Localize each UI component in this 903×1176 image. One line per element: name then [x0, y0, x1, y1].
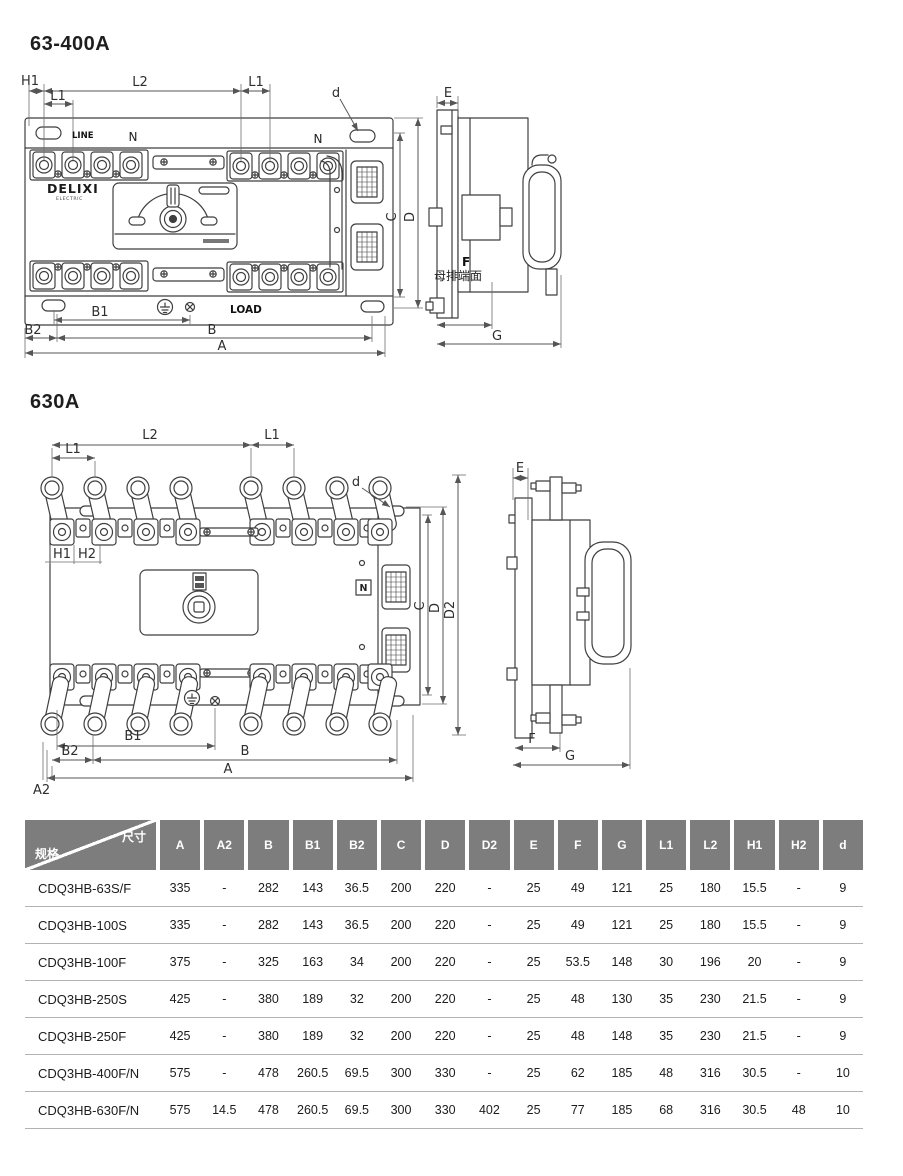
value-cell: - [469, 870, 509, 906]
column-header: L2 [690, 820, 730, 870]
value-cell: 53.5 [558, 944, 598, 980]
value-cell: - [204, 870, 244, 906]
value-cell: 25 [514, 907, 554, 943]
column-header: E [514, 820, 554, 870]
value-cell: - [779, 1055, 819, 1091]
value-cell: 9 [823, 1018, 863, 1054]
value-cell: 163 [293, 944, 333, 980]
dim-label-b2: B2 [61, 744, 78, 759]
value-cell: 143 [293, 907, 333, 943]
column-header: B [248, 820, 288, 870]
value-cell: 180 [690, 870, 730, 906]
column-header: H1 [734, 820, 774, 870]
value-cell: - [779, 944, 819, 980]
value-cell: 69.5 [337, 1055, 377, 1091]
mounting-slot [42, 300, 65, 311]
dim-label-a: A [218, 339, 227, 354]
value-cell: 220 [425, 981, 465, 1017]
model-cell: CDQ3HB-400F/N [25, 1055, 156, 1091]
busbar-face-note: 母排端面 [434, 269, 482, 283]
dimensions-table: 尺寸 规格 AA2BB1B2CDD2EFGL1L2H1H2d CDQ3HB-63… [25, 820, 863, 1129]
dim-label-l2: L2 [132, 75, 148, 90]
dim-label-f: F [462, 255, 470, 269]
dim-label-l1: L1 [50, 89, 66, 104]
value-cell: 220 [425, 1018, 465, 1054]
value-cell: 35 [646, 1018, 686, 1054]
column-header: A2 [204, 820, 244, 870]
bottom-lug-holes [41, 713, 391, 735]
dimension-drawing-63-400a: H1 L2 L1 L1 d LINE N N DELIXI ELECTRIC L… [0, 70, 903, 370]
neutral-label: N [314, 132, 323, 146]
model-cell: CDQ3HB-63S/F [25, 870, 156, 906]
value-cell: 143 [293, 870, 333, 906]
value-cell: 220 [425, 907, 465, 943]
neutral-label: N [129, 130, 138, 144]
column-header: A [160, 820, 200, 870]
corner-label-size: 尺寸 [122, 828, 146, 845]
front-view-630a [41, 477, 420, 735]
value-cell: 48 [779, 1092, 819, 1128]
value-cell: 68 [646, 1092, 686, 1128]
value-cell: 25 [514, 1092, 554, 1128]
value-cell: 10 [823, 1092, 863, 1128]
value-cell: 220 [425, 870, 465, 906]
value-cell: - [779, 1018, 819, 1054]
column-header: L1 [646, 820, 686, 870]
side-view-630a [507, 477, 631, 738]
dimension-drawing-630a: L2 L1 L1 d H1 H2 N C D D2 B1 B2 B A A2 E… [0, 420, 903, 812]
value-cell: 148 [602, 1018, 642, 1054]
busbar-stud [550, 477, 562, 520]
value-cell: 196 [690, 944, 730, 980]
value-cell: 36.5 [337, 907, 377, 943]
value-cell: 25 [514, 1055, 554, 1091]
dim-label-b2: B2 [24, 323, 41, 338]
column-header: D [425, 820, 465, 870]
dim-label-a2: A2 [33, 783, 50, 798]
value-cell: 9 [823, 907, 863, 943]
value-cell: 130 [602, 981, 642, 1017]
value-cell: 148 [602, 944, 642, 980]
value-cell: 25 [514, 870, 554, 906]
value-cell: 14.5 [204, 1092, 244, 1128]
value-cell: 282 [248, 907, 288, 943]
value-cell: 32 [337, 1018, 377, 1054]
value-cell: 330 [425, 1055, 465, 1091]
dim-label-g: G [565, 749, 575, 764]
value-cell: 200 [381, 870, 421, 906]
mounting-slot [350, 130, 375, 142]
value-cell: - [779, 981, 819, 1017]
value-cell: 316 [690, 1055, 730, 1091]
value-cell: 36.5 [337, 870, 377, 906]
value-cell: - [204, 944, 244, 980]
dim-label-c: C [385, 212, 400, 221]
value-cell: 330 [425, 1092, 465, 1128]
value-cell: 48 [558, 1018, 598, 1054]
value-cell: 30.5 [734, 1055, 774, 1091]
dim-label-a: A [224, 762, 233, 777]
table-row: CDQ3HB-63S/F335-28214336.5200220-2549121… [25, 870, 863, 907]
value-cell: - [469, 907, 509, 943]
value-cell: 25 [514, 981, 554, 1017]
value-cell: 21.5 [734, 981, 774, 1017]
value-cell: 9 [823, 870, 863, 906]
side-view-63-400a [426, 110, 561, 318]
neutral-box-label: N [360, 583, 368, 594]
model-cell: CDQ3HB-630F/N [25, 1092, 156, 1128]
dim-label-l1: L1 [248, 75, 264, 90]
value-cell: 21.5 [734, 1018, 774, 1054]
model-cell: CDQ3HB-250S [25, 981, 156, 1017]
column-header: C [381, 820, 421, 870]
value-cell: 380 [248, 1018, 288, 1054]
dim-label-b1: B1 [124, 729, 141, 744]
column-header: B1 [293, 820, 333, 870]
top-lug-holes [41, 477, 391, 499]
value-cell: 300 [381, 1055, 421, 1091]
datasheet-page: 63-400A [0, 0, 903, 1176]
value-cell: 30.5 [734, 1092, 774, 1128]
value-cell: 316 [690, 1092, 730, 1128]
value-cell: - [204, 1055, 244, 1091]
value-cell: 25 [514, 944, 554, 980]
column-header: B2 [337, 820, 377, 870]
value-cell: 200 [381, 981, 421, 1017]
dim-label-b1: B1 [91, 305, 108, 320]
value-cell: 402 [469, 1092, 509, 1128]
model-cell: CDQ3HB-100F [25, 944, 156, 980]
dim-label-b: B [241, 744, 250, 759]
value-cell: 49 [558, 870, 598, 906]
value-cell: 300 [381, 1092, 421, 1128]
dim-label-l2: L2 [142, 428, 158, 443]
dim-label-d: d [352, 475, 360, 490]
dim-label-e: E [516, 461, 524, 476]
value-cell: 200 [381, 1018, 421, 1054]
value-cell: 49 [558, 907, 598, 943]
value-cell: 375 [160, 944, 200, 980]
dim-label-d-height: D [428, 603, 443, 613]
value-cell: 62 [558, 1055, 598, 1091]
value-cell: - [204, 981, 244, 1017]
column-header: G [602, 820, 642, 870]
table-row: CDQ3HB-400F/N575-478260.569.5300330-2562… [25, 1055, 863, 1092]
value-cell: 35 [646, 981, 686, 1017]
mounting-slot [361, 301, 384, 312]
dim-label-l1: L1 [65, 442, 81, 457]
section-title-63-400a: 63-400A [30, 33, 110, 56]
value-cell: 425 [160, 981, 200, 1017]
table-row: CDQ3HB-250S425-38018932200220-2548130352… [25, 981, 863, 1018]
dim-label-d: d [332, 86, 340, 101]
value-cell: 380 [248, 981, 288, 1017]
front-view-63-400a [25, 118, 393, 325]
value-cell: 9 [823, 944, 863, 980]
value-cell: 121 [602, 870, 642, 906]
column-header: F [558, 820, 598, 870]
value-cell: 425 [160, 1018, 200, 1054]
value-cell: 77 [558, 1092, 598, 1128]
value-cell: 575 [160, 1055, 200, 1091]
value-cell: 478 [248, 1055, 288, 1091]
value-cell: 48 [558, 981, 598, 1017]
value-cell: - [779, 870, 819, 906]
table-row: CDQ3HB-100F375-32516334200220-2553.51483… [25, 944, 863, 981]
ground-symbol [158, 300, 173, 315]
value-cell: 230 [690, 981, 730, 1017]
column-header: D2 [469, 820, 509, 870]
line-terminal-label: LINE [72, 131, 94, 141]
value-cell: - [204, 1018, 244, 1054]
value-cell: - [469, 981, 509, 1017]
column-header: H2 [779, 820, 819, 870]
value-cell: 282 [248, 870, 288, 906]
value-cell: - [779, 907, 819, 943]
value-cell: 34 [337, 944, 377, 980]
value-cell: 575 [160, 1092, 200, 1128]
dim-label-c: C [413, 601, 428, 610]
dim-label-d2: D2 [443, 601, 458, 619]
table-body: CDQ3HB-63S/F335-28214336.5200220-2549121… [25, 870, 863, 1129]
dim-label-h1: H1 [21, 74, 39, 89]
value-cell: 10 [823, 1055, 863, 1091]
value-cell: 478 [248, 1092, 288, 1128]
dim-label-f: F [528, 732, 535, 747]
dim-label-b: B [208, 323, 217, 338]
corner-label-spec: 规格 [35, 845, 59, 862]
value-cell: 15.5 [734, 870, 774, 906]
value-cell: 20 [734, 944, 774, 980]
value-cell: 9 [823, 981, 863, 1017]
value-cell: 185 [602, 1092, 642, 1128]
value-cell: 48 [646, 1055, 686, 1091]
value-cell: 200 [381, 944, 421, 980]
ground-symbol [185, 691, 200, 706]
value-cell: 335 [160, 907, 200, 943]
value-cell: 189 [293, 981, 333, 1017]
value-cell: 121 [602, 907, 642, 943]
value-cell: 230 [690, 1018, 730, 1054]
value-cell: 25 [514, 1018, 554, 1054]
model-cell: CDQ3HB-250F [25, 1018, 156, 1054]
table-row: CDQ3HB-250F425-38018932200220-2548148352… [25, 1018, 863, 1055]
value-cell: 200 [381, 907, 421, 943]
mounting-slot [36, 127, 61, 139]
table-row: CDQ3HB-100S335-28214336.5200220-25491212… [25, 907, 863, 944]
value-cell: 260.5 [293, 1055, 333, 1091]
value-cell: - [469, 944, 509, 980]
brand-sub: ELECTRIC [56, 196, 83, 202]
value-cell: 32 [337, 981, 377, 1017]
value-cell: 180 [690, 907, 730, 943]
model-cell: CDQ3HB-100S [25, 907, 156, 943]
value-cell: 325 [248, 944, 288, 980]
value-cell: - [204, 907, 244, 943]
dim-label-h2: H2 [78, 547, 96, 562]
busbar-stud [550, 685, 562, 733]
section-title-630a: 630A [30, 391, 80, 414]
table-header-row: 尺寸 规格 AA2BB1B2CDD2EFGL1L2H1H2d [25, 820, 863, 870]
dim-label-h1: H1 [53, 547, 71, 562]
load-terminal-label: LOAD [230, 304, 262, 316]
value-cell: 189 [293, 1018, 333, 1054]
column-header: d [823, 820, 863, 870]
value-cell: - [469, 1055, 509, 1091]
value-cell: 185 [602, 1055, 642, 1091]
value-cell: 15.5 [734, 907, 774, 943]
value-cell: 30 [646, 944, 686, 980]
table-row: CDQ3HB-630F/N57514.5478260.569.530033040… [25, 1092, 863, 1129]
value-cell: 260.5 [293, 1092, 333, 1128]
value-cell: 220 [425, 944, 465, 980]
value-cell: 25 [646, 870, 686, 906]
value-cell: - [469, 1018, 509, 1054]
dim-label-d-height: D [403, 212, 418, 222]
dim-label-g: G [492, 329, 502, 344]
value-cell: 69.5 [337, 1092, 377, 1128]
value-cell: 335 [160, 870, 200, 906]
dim-label-l1: L1 [264, 428, 280, 443]
value-cell: 25 [646, 907, 686, 943]
table-corner-cell: 尺寸 规格 [25, 820, 156, 870]
dim-label-e: E [444, 86, 452, 101]
brand-logo: DELIXI [47, 181, 99, 196]
